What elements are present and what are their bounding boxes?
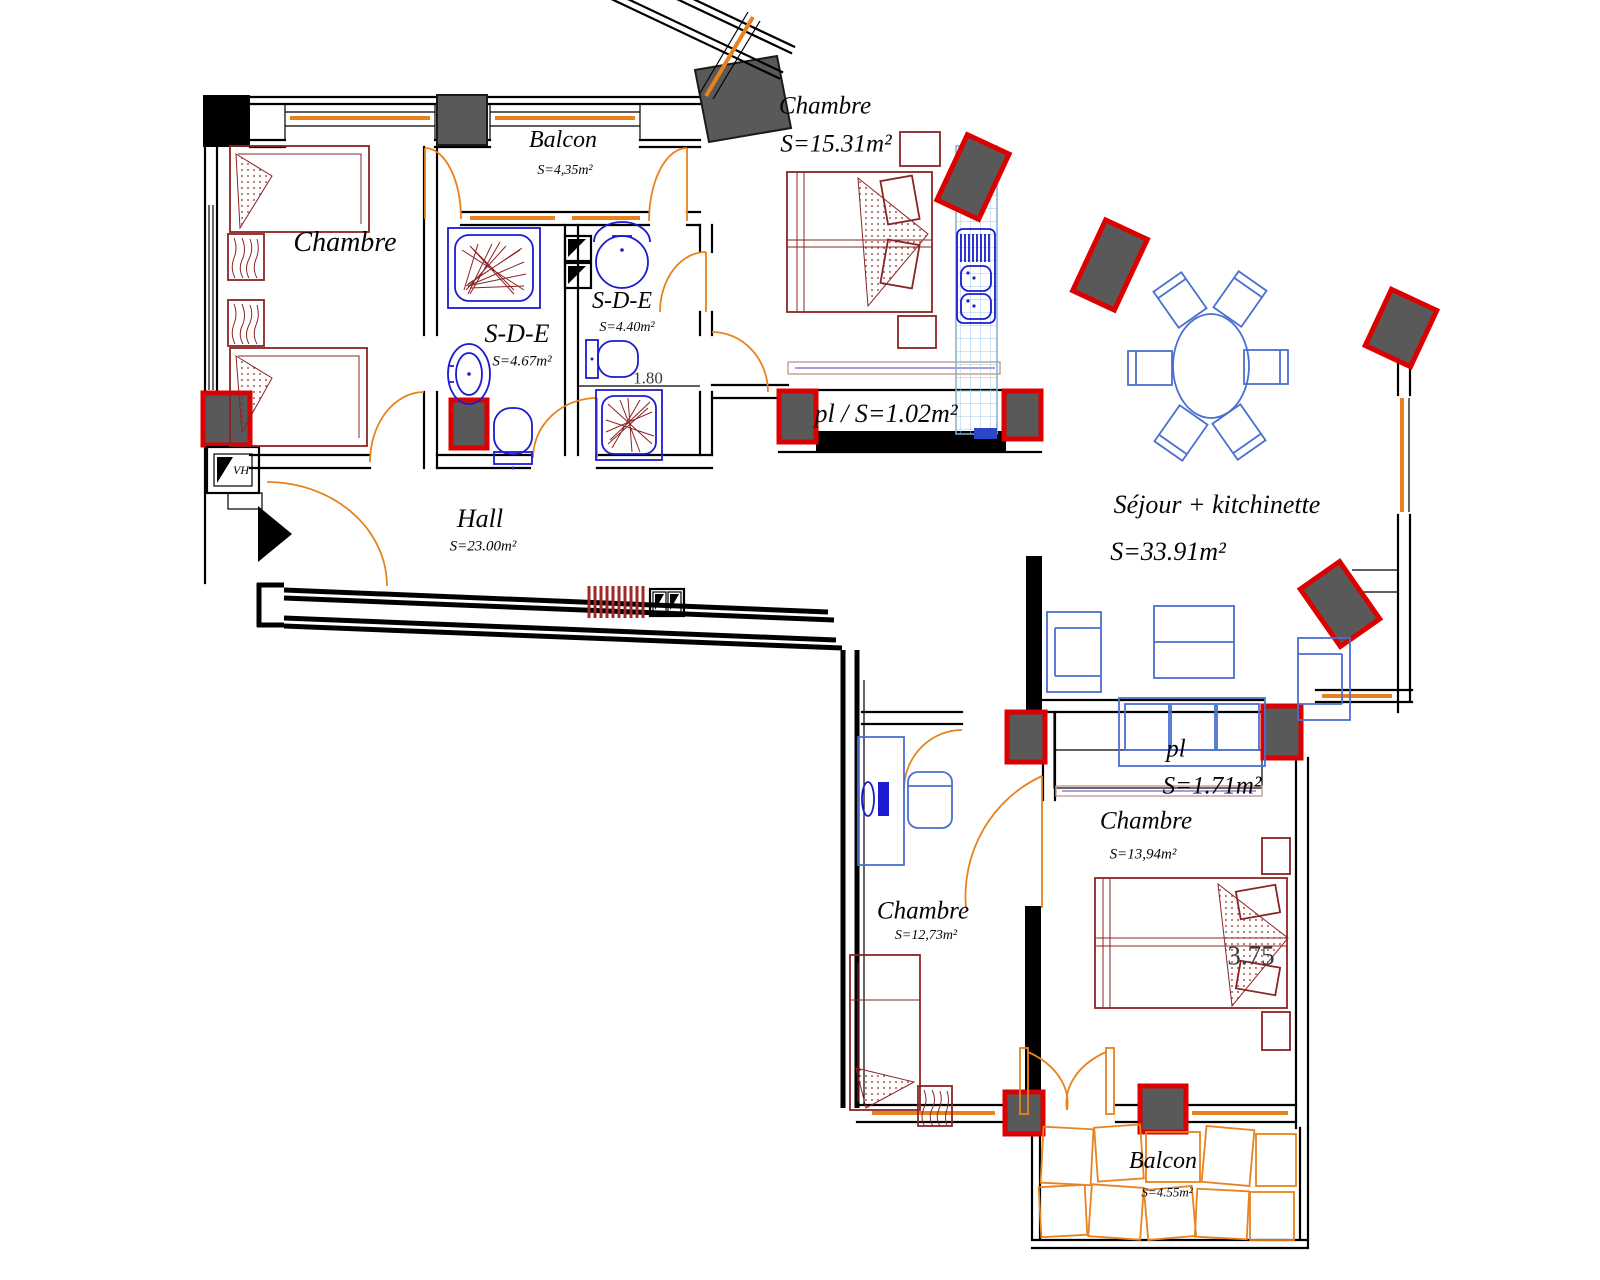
room-label-sde-right: S-D-E <box>592 289 652 313</box>
right-exterior-wall <box>1296 352 1412 1128</box>
toilet-left <box>494 408 532 470</box>
left-exterior-wall <box>205 147 217 583</box>
room-label-chambre-top-right: Chambre <box>779 94 871 119</box>
balcony-stones <box>1039 1124 1296 1240</box>
dimension-label-bed: 3.75 <box>1227 943 1274 970</box>
chambre-bl-walls <box>857 556 1042 1122</box>
room-label-balcon-bottom: Balcon <box>1129 1149 1197 1173</box>
toilet-right <box>586 340 638 378</box>
bathtub <box>448 228 540 308</box>
desk-set <box>858 737 952 865</box>
corner-black-pillar <box>203 95 250 147</box>
area-label-sejour: S=33.91m² <box>1110 539 1226 565</box>
chambre-tl-walls <box>250 147 437 468</box>
hall-south-wall <box>257 583 864 1108</box>
area-label-balcon-top: S=4,35m² <box>537 164 592 178</box>
dimension-label-shower: 1.80 <box>633 370 663 387</box>
area-label-chambre-bottom-right: S=13,94m² <box>1110 848 1177 863</box>
room-label-closet-bottom: pl <box>1166 737 1185 762</box>
shaft-label-vh: VH <box>233 464 249 476</box>
area-label-closet-bottom: S=1.71m² <box>1163 774 1262 799</box>
room-label-chambre-bottom-right: Chambre <box>1100 809 1192 834</box>
kitchen-counter-end <box>974 428 997 439</box>
sofa-set <box>1047 606 1350 766</box>
bed-double-top-right <box>787 132 940 348</box>
room-label-sde-left: S-D-E <box>485 321 550 347</box>
pillars <box>203 135 1437 1134</box>
area-label-hall: S=23.00m² <box>450 540 517 555</box>
nightstands-wood <box>228 234 264 346</box>
vh-shaft <box>207 447 262 509</box>
balcon-bottom-walls <box>1032 1118 1308 1248</box>
room-label-chambre-top-left: Chambre <box>293 229 396 257</box>
room-label-sejour: Séjour + kitchinette <box>1114 492 1321 518</box>
dining-table-set <box>1128 271 1288 461</box>
washbasin-left <box>448 344 490 404</box>
area-label-sde-right: S=4.40m² <box>599 321 654 335</box>
room-label-balcon-top: Balcon <box>529 128 597 152</box>
floorplan-canvas: Chambre Balcon S=4,35m² S-D-E S=4.67m² S… <box>0 0 1600 1280</box>
top-grey-pillar <box>437 95 487 145</box>
diagonal-balcony-wall <box>47 0 794 99</box>
area-label-chambre-top-right: S=15.31m² <box>780 132 891 157</box>
door-arcs <box>267 148 1042 908</box>
area-label-balcon-bottom: S=4.55m² <box>1141 1186 1192 1199</box>
room-label-hall: Hall <box>457 506 503 532</box>
bed-single-top-1 <box>230 146 369 232</box>
bed-single-bottom-left <box>850 955 952 1126</box>
washbasin-right <box>594 222 650 288</box>
room-label-chambre-bottom-left: Chambre <box>877 899 969 924</box>
floorplan-drawing <box>0 0 1600 1280</box>
shower-tray <box>596 390 662 460</box>
entry-arrow <box>258 506 292 562</box>
room-label-closet-hall: pl / S=1.02m² <box>814 401 957 427</box>
area-label-chambre-bottom-left: S=12,73m² <box>895 929 957 943</box>
area-label-sde-left: S=4.67m² <box>492 355 551 370</box>
